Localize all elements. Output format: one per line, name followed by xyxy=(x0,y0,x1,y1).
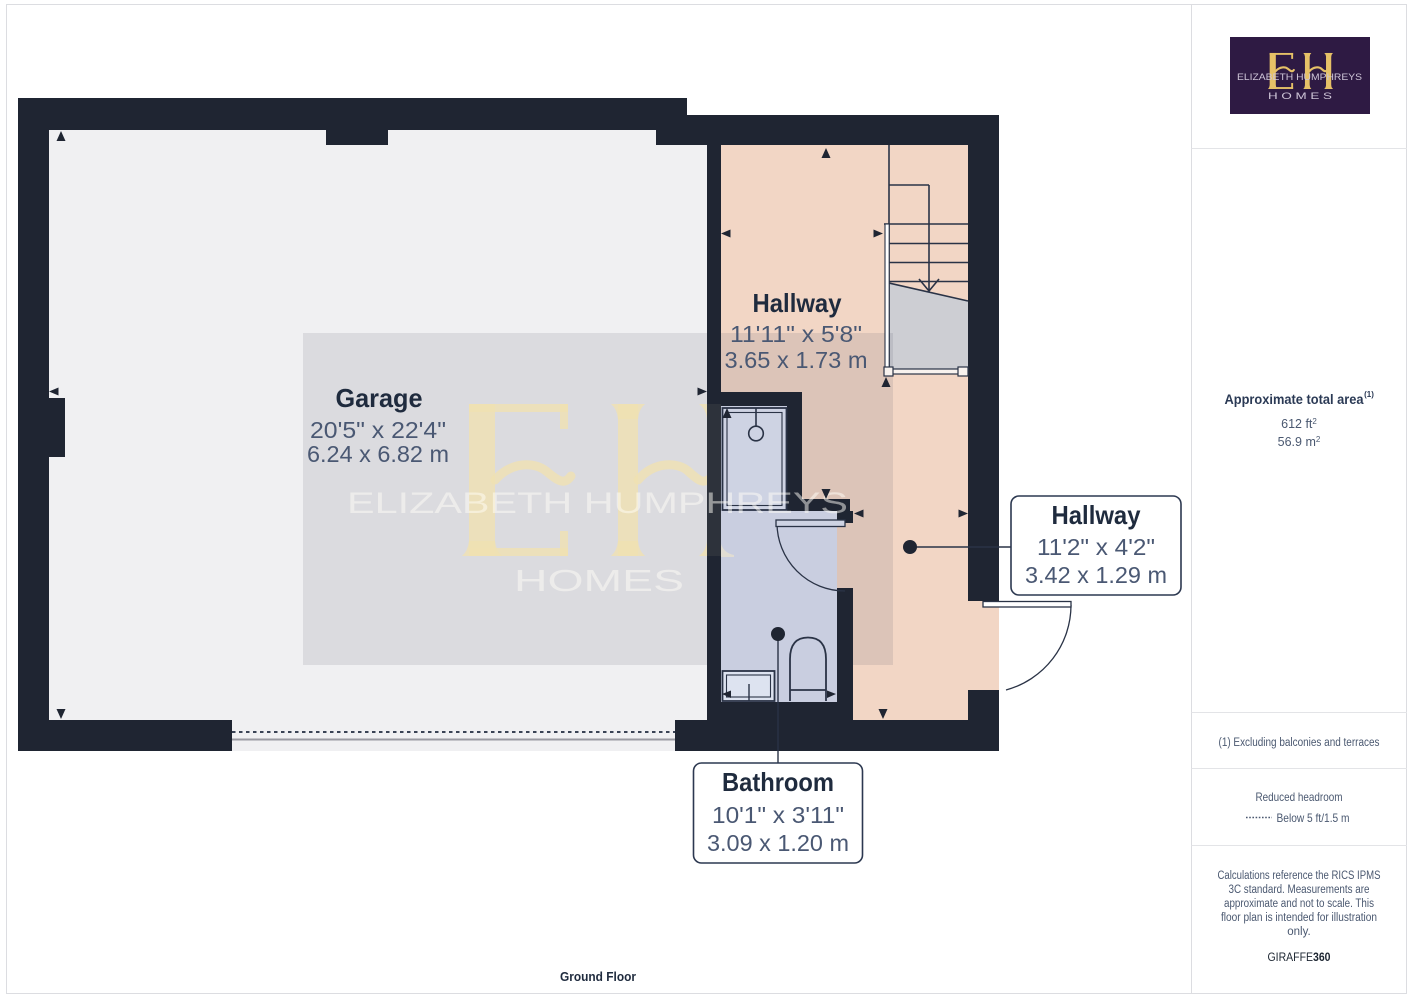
svg-text:Hallway: Hallway xyxy=(753,288,842,318)
svg-text:11'11" x 5'8": 11'11" x 5'8" xyxy=(730,321,862,347)
svg-text:ELIZABETH HUMPHREYS: ELIZABETH HUMPHREYS xyxy=(1237,72,1362,83)
svg-text:Hallway: Hallway xyxy=(1052,500,1141,530)
svg-text:ELIZABETH HUMPHREYS: ELIZABETH HUMPHREYS xyxy=(347,487,848,520)
svg-text:Garage: Garage xyxy=(336,383,423,413)
svg-text:Approximate total area: Approximate total area xyxy=(1225,392,1364,407)
svg-text:Calculations reference the RIC: Calculations reference the RICS IPMS xyxy=(1218,870,1381,882)
svg-text:612 ft2: 612 ft2 xyxy=(1281,417,1317,431)
svg-text:3.09 x 1.20 m: 3.09 x 1.20 m xyxy=(707,830,849,856)
svg-text:approximate and not to scale.: approximate and not to scale. This xyxy=(1224,898,1374,910)
svg-text:Reduced headroom: Reduced headroom xyxy=(1256,790,1343,804)
svg-text:HOMES: HOMES xyxy=(514,563,684,598)
svg-text:only.: only. xyxy=(1287,926,1310,938)
svg-text:20'5" x 22'4": 20'5" x 22'4" xyxy=(310,417,446,443)
svg-text:H O M E S: H O M E S xyxy=(1268,91,1332,102)
svg-text:3.65 x 1.73 m: 3.65 x 1.73 m xyxy=(725,347,868,373)
svg-text:Ground Floor: Ground Floor xyxy=(560,969,636,984)
svg-text:Bathroom: Bathroom xyxy=(722,767,834,797)
svg-text:3.42 x 1.29 m: 3.42 x 1.29 m xyxy=(1025,562,1167,588)
svg-text:(1) Excluding balconies and te: (1) Excluding balconies and terraces xyxy=(1219,737,1380,749)
svg-text:11'2" x 4'2": 11'2" x 4'2" xyxy=(1037,534,1155,560)
svg-text:GIRAFFE360: GIRAFFE360 xyxy=(1268,952,1331,964)
svg-text:(1): (1) xyxy=(1364,390,1374,399)
svg-text:Below 5 ft/1.5 m: Below 5 ft/1.5 m xyxy=(1277,811,1350,825)
svg-text:6.24 x 6.82 m: 6.24 x 6.82 m xyxy=(307,441,449,467)
svg-text:56.9 m2: 56.9 m2 xyxy=(1278,435,1321,449)
svg-text:10'1" x 3'11": 10'1" x 3'11" xyxy=(712,802,844,828)
svg-text:floor plan is intended for ill: floor plan is intended for illustration xyxy=(1221,912,1377,924)
svg-text:3C standard. Measurements are: 3C standard. Measurements are xyxy=(1229,884,1370,896)
